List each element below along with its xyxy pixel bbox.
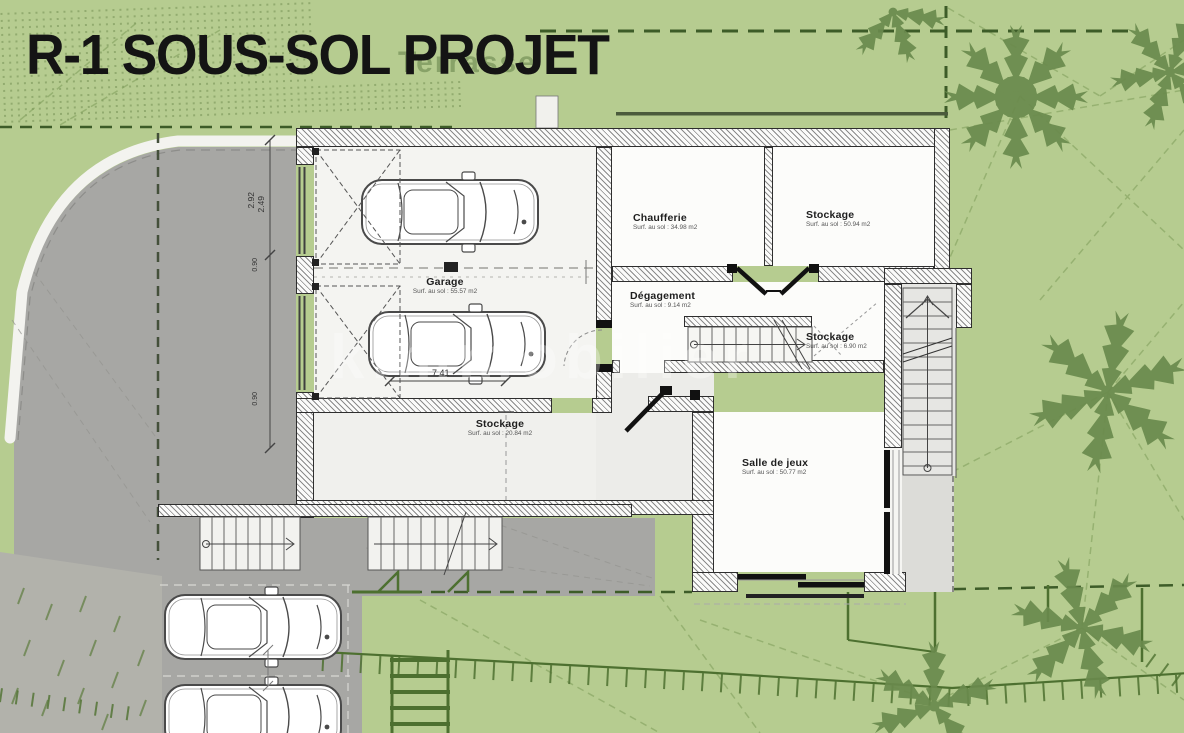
stair-corridor-floor [902, 284, 956, 476]
wall [864, 572, 906, 592]
corridor-floor-2 [596, 413, 612, 500]
wall [648, 396, 714, 412]
room-label-chaufferie: Chaufferie Surf. au sol : 34.98 m2 [633, 212, 697, 231]
wall [692, 572, 738, 592]
room-floor-chaufferie [612, 147, 764, 266]
wall [296, 398, 552, 413]
grass-ticks [12, 588, 146, 730]
terrace-edge [616, 112, 948, 116]
wall [612, 266, 733, 282]
embankment [0, 552, 162, 733]
tree-icon [1017, 298, 1184, 486]
floor-plan: Terrasse R-1 SOUS-SOL PROJET kimmobilier… [0, 0, 1184, 733]
room-floor-stockage-haut [773, 147, 934, 266]
wall [296, 256, 314, 294]
garden-steps [0, 572, 1184, 733]
dimension-label-090-a: 0.90 [252, 258, 259, 272]
wall [158, 504, 632, 517]
landing-floor [902, 476, 954, 592]
watermark: kimmobilier [330, 322, 755, 393]
tree-icon [869, 641, 999, 733]
wall [596, 147, 612, 328]
wall [884, 268, 972, 284]
window-icon [884, 448, 902, 574]
dimension-label-292: 2.92 [246, 192, 256, 209]
wall [296, 128, 950, 147]
room-label-salle-de-jeux: Salle de jeux Surf. au sol : 50.77 m2 [742, 457, 808, 476]
wall [592, 398, 612, 413]
dimension-label-090-b: 0.90 [252, 392, 259, 406]
parking-lines [160, 585, 352, 733]
wall [764, 147, 773, 266]
room-floor-salle-de-jeux [714, 412, 884, 572]
stair-icon [368, 512, 502, 575]
car-icon [165, 677, 341, 733]
tree-icon [944, 25, 1088, 169]
tree-icon [842, 0, 958, 79]
room-label-garage: Garage Surf. au sol : 55.57 m2 [385, 276, 505, 295]
stair-icon [200, 517, 300, 570]
tree-icon [1095, 0, 1184, 148]
dimension-label-249: 2.49 [256, 196, 266, 213]
car-icon [165, 587, 341, 667]
dimension-label-741: 7.41 [432, 368, 450, 378]
wall [296, 147, 314, 165]
room-label-stockage-haut: Stockage Surf. au sol : 50.94 m2 [806, 209, 870, 228]
wall-stub [536, 96, 558, 128]
wall [934, 128, 950, 282]
room-label-stockage-milieu: Stockage Surf. au sol : 6.90 m2 [806, 331, 867, 350]
room-label-degagement: Dégagement Surf. au sol : 9.14 m2 [630, 290, 695, 309]
wall [956, 284, 972, 328]
room-label-stockage-bas: Stockage Surf. au sol : 20.84 m2 [440, 418, 560, 437]
tree-icon [997, 541, 1168, 716]
page-title: R-1 SOUS-SOL PROJET [26, 22, 609, 88]
wall [884, 284, 902, 448]
